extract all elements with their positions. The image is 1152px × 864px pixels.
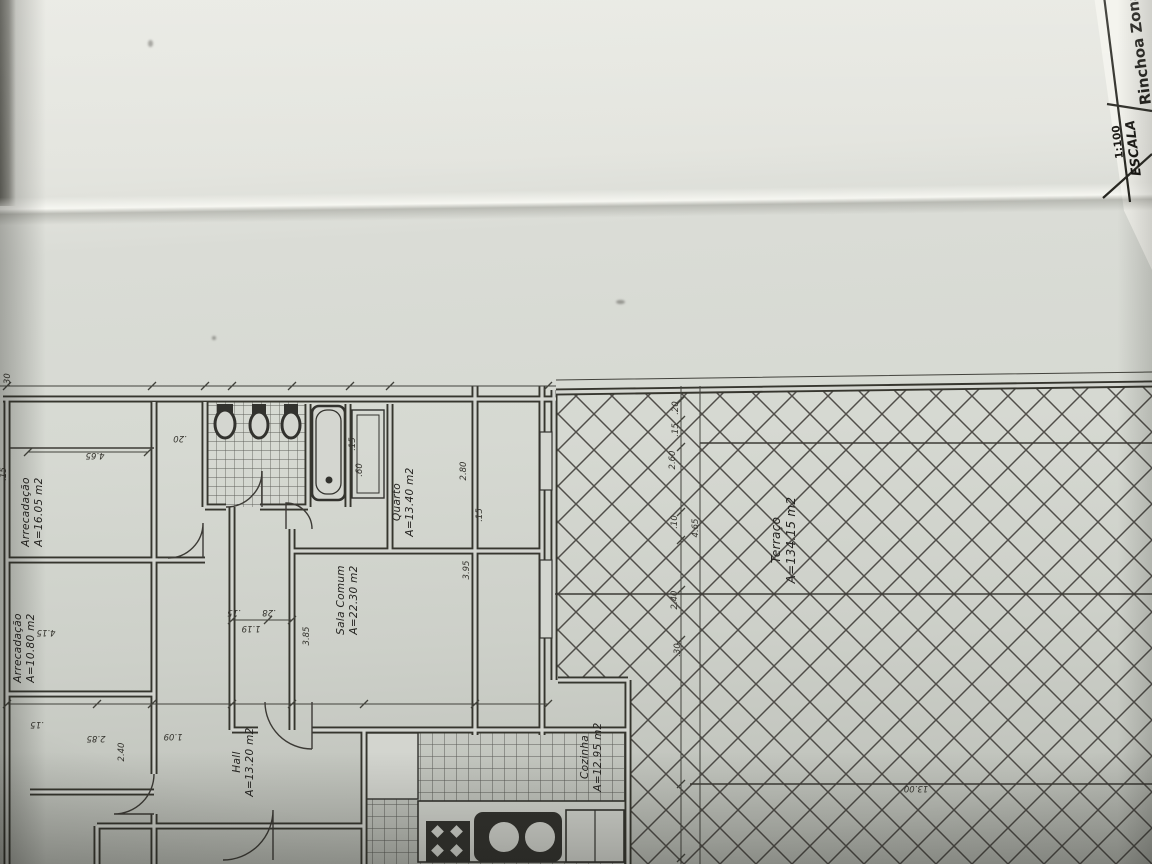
room-label-arrecadacao-10: Arrecadação A=10.80 m2: [12, 613, 38, 683]
bathroom-fixtures: [205, 402, 384, 507]
dimension-label: 1.09: [164, 731, 183, 741]
dimension-label: .30: [3, 373, 13, 387]
dimension-label: 3.85: [302, 627, 312, 646]
dimension-label: 2.40: [117, 743, 127, 762]
dimension-label: .15: [227, 607, 241, 617]
dimension-label: .15: [0, 467, 9, 481]
dimension-label: .15: [671, 423, 681, 437]
dimension-label: .28: [262, 607, 276, 617]
room-name: Arrecadação: [12, 613, 25, 683]
room-name: Terraço: [769, 497, 784, 584]
room-label-cozinha: Cozinha A=12.95 m2: [579, 722, 605, 791]
dimension-label: .15: [348, 437, 358, 451]
room-area: A=13.40 m2: [404, 467, 417, 536]
dimension-label: .10: [670, 515, 680, 529]
room-name: Hall: [231, 727, 244, 796]
dimension-label: .15: [475, 508, 485, 522]
room-name: Cozinha: [579, 722, 592, 791]
dimension-label: 2.85: [87, 733, 106, 743]
dimension-label: .20: [671, 401, 681, 415]
room-label-arrecadacao-16: Arrecadação A=16.05 m2: [20, 477, 46, 547]
dimension-label: .30: [673, 643, 683, 657]
room-label-terraco: Terraço A=134.15 m2: [769, 497, 799, 584]
dimension-label: .20: [173, 433, 187, 443]
room-label-sala-comum: Sala Comum A=22.30 m2: [335, 565, 361, 635]
floor-plan-photo: Arrecadação A=16.05 m2 Arrecadação A=10.…: [0, 0, 1152, 864]
room-area: A=12.95 m2: [592, 722, 605, 791]
room-area: A=22.30 m2: [348, 565, 361, 635]
dimension-label: 2.80: [459, 462, 469, 481]
door-swing-arcs: [114, 471, 312, 860]
room-name: Arrecadação: [20, 477, 33, 547]
dimension-label: 2.60: [668, 451, 678, 470]
room-label-hall: Hall A=13.20 m2: [231, 727, 257, 796]
dimension-label: 3.95: [462, 561, 472, 580]
dimension-label: 4.15: [37, 627, 56, 637]
dimension-label: 4.65: [86, 450, 105, 460]
room-name: Sala Comum: [335, 565, 348, 635]
terrace-hatch-region: [555, 383, 1152, 864]
dimension-label: 2.40: [670, 591, 680, 610]
room-area: A=13.20 m2: [244, 727, 257, 796]
room-area: A=16.05 m2: [33, 477, 46, 547]
room-label-quarto: Quarto A=13.40 m2: [391, 467, 417, 536]
room-area: A=134.15 m2: [784, 497, 799, 584]
room-area: A=10.80 m2: [25, 613, 38, 683]
dimension-label: 13.00: [904, 783, 928, 793]
dimension-label: .15: [30, 719, 44, 729]
dimension-label: 4.65: [691, 519, 701, 538]
dimension-label: .60: [355, 463, 365, 477]
room-name: Quarto: [391, 467, 404, 536]
dimension-label: 1.19: [242, 623, 261, 633]
